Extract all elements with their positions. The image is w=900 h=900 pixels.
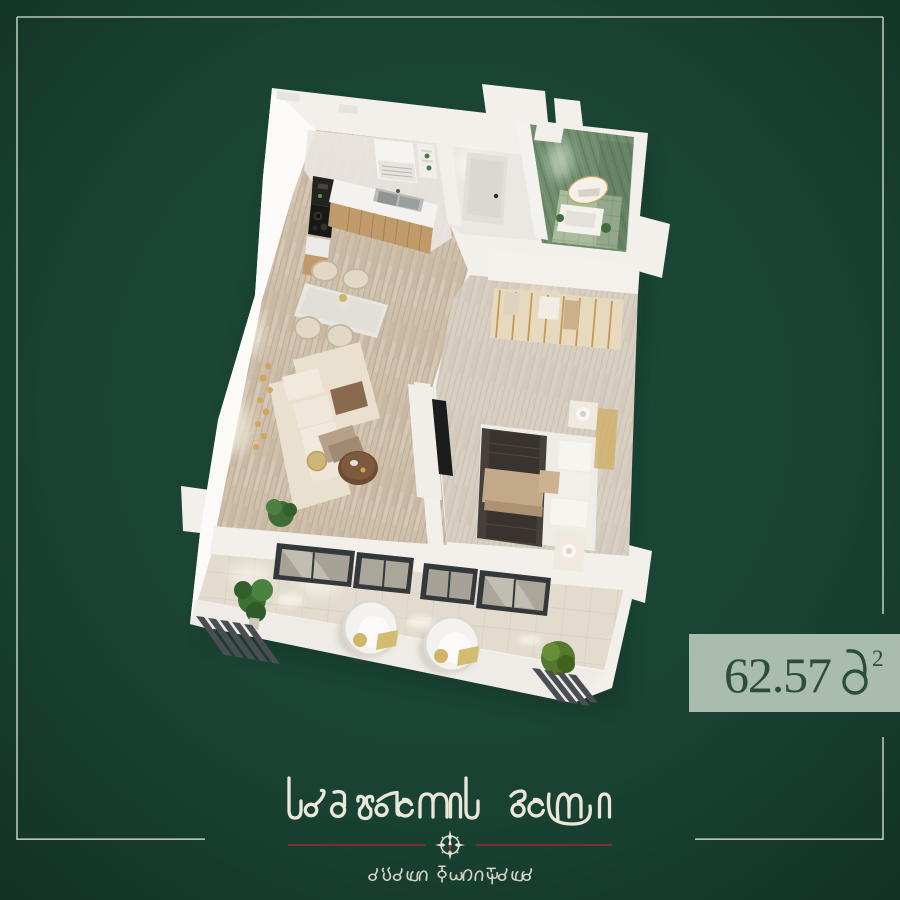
svg-text:2: 2 [872, 646, 884, 671]
svg-text:62.57: 62.57 [724, 647, 832, 703]
